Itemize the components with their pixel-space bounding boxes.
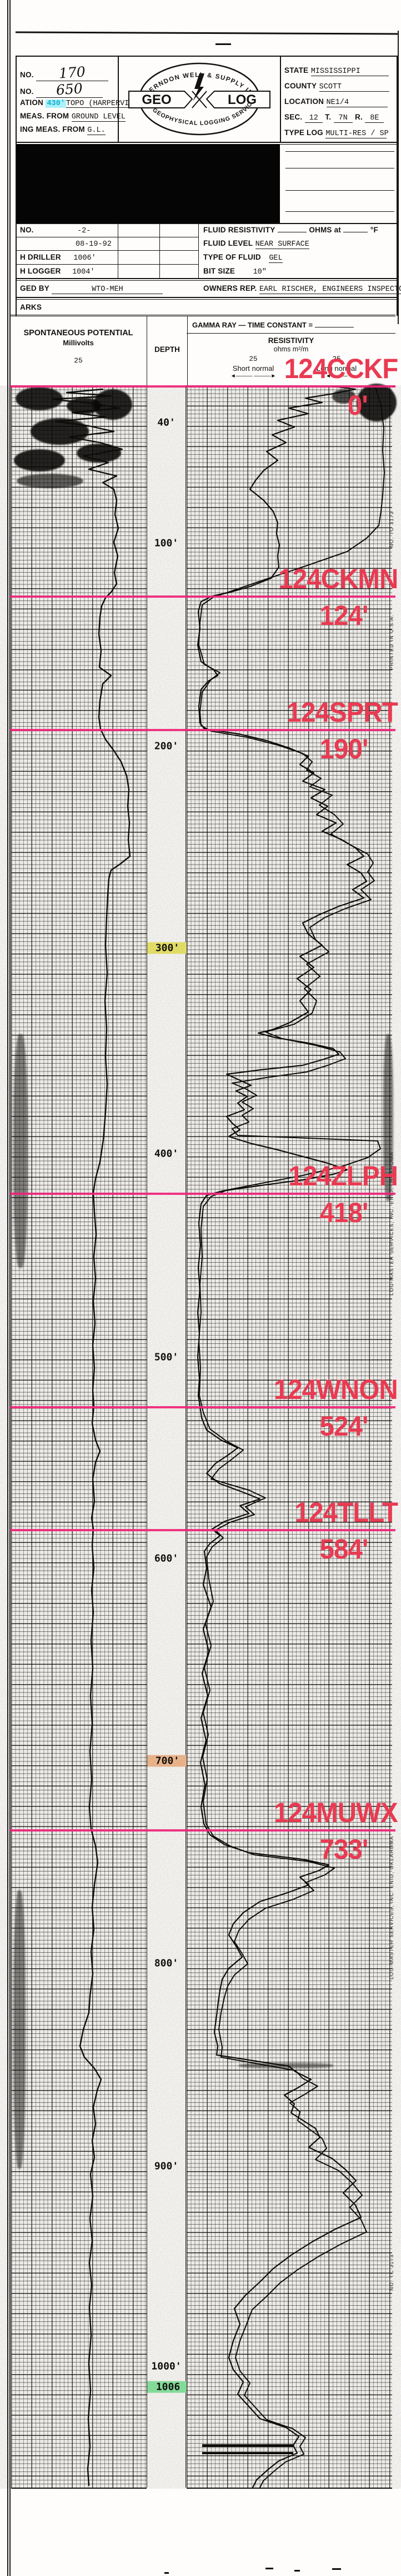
arrow-left-icon: ◄———	[230, 373, 253, 379]
field-meas-from: MEAS. FROM GROUND LEVEL	[20, 111, 126, 121]
edge-smudge	[13, 1034, 28, 1268]
toner-blotch	[93, 389, 132, 420]
short-normal-scale: 25	[220, 355, 287, 363]
field-value: G.L.	[87, 126, 105, 135]
margin-note-4: NO. TC 3173	[389, 2254, 394, 2291]
field-label: H LOGGER	[20, 267, 61, 275]
field-run-no: NO. -2-	[20, 225, 91, 235]
field-no-2: NO. 650	[20, 81, 103, 98]
field-fluid-level: FLUID LEVEL NEAR SURFACE	[203, 239, 309, 249]
field-label: ATION	[20, 98, 43, 107]
resistivity-title: RESISTIVITY	[187, 336, 395, 345]
depth-label-500: 500'	[147, 1352, 186, 1363]
field-depth-logger: H LOGGER 1004'	[20, 266, 95, 276]
long-normal-scale: 25	[303, 355, 370, 363]
field-label: NO.	[20, 226, 34, 234]
toner-blotch	[17, 474, 83, 488]
field-label: NO.	[20, 71, 34, 79]
field-value: WTO-MEH	[52, 285, 163, 294]
margin-note-0: NO. TC 3173	[389, 511, 394, 548]
depth-track: 40'100'200'300'400'500'600'700'800'900'1…	[147, 385, 186, 2488]
long-normal-arrows: ◄———	[303, 373, 370, 379]
depth-label-300: 300'	[147, 942, 188, 954]
field-value: 10"	[253, 268, 267, 276]
toner-blotch	[77, 444, 121, 463]
sp-track-grid	[11, 385, 147, 2489]
field-label: COUNTY	[284, 82, 317, 90]
field-fluid-resistivity: FLUID RESISTIVITY OHMS at °F	[203, 225, 378, 235]
ink-bar	[202, 2452, 293, 2454]
field-remarks: ARKS	[20, 302, 42, 312]
field-unit: OHMS at	[309, 226, 341, 234]
margin-note-2: LOG-MASTER SERVICES, INC. ENID, OKLAHOMA	[389, 1152, 394, 1296]
ink-dash	[215, 43, 231, 45]
field-state: STATE MISSISSIPPI	[284, 66, 389, 76]
field-value-t: 7N	[334, 114, 353, 123]
field-value-sec: 12	[305, 114, 323, 123]
resistivity-divider	[187, 333, 395, 334]
depth-label-100: 100'	[147, 538, 186, 549]
depth-labels-layer: 40'100'200'300'400'500'600'700'800'900'1…	[147, 0, 186, 2488]
field-owners-rep: OWNERS REP. EARL RISCHER, ENGINEERS INSP…	[203, 284, 401, 294]
field-value-handwritten: 170	[58, 63, 86, 81]
field-logged-by: GED BY WTO-MEH	[20, 284, 163, 294]
toner-blotch	[332, 389, 355, 404]
field-value-handwritten: 650	[56, 80, 83, 98]
field-sec-t-r: SEC. 12 T. 7N R. 8E	[284, 112, 384, 123]
blank-field-line	[285, 211, 394, 212]
depth-label-1006: 1006	[147, 2381, 189, 2393]
field-label: FLUID LEVEL	[203, 239, 253, 247]
field-value: NEAR SURFACE	[255, 240, 309, 249]
field-label-sec: SEC.	[284, 113, 302, 121]
sp-title: SPONTANEOUS POTENTIAL	[10, 329, 147, 337]
ink-speck	[164, 2572, 169, 2574]
page-border-right	[398, 31, 399, 324]
depth-label-400: 400'	[147, 1148, 186, 1160]
field-value-r: 8E	[365, 114, 384, 123]
log-header: NO. 170 NO. 650 ATION 430'TOPO (HARPERVI…	[16, 56, 398, 316]
field-location: LOCATION NE1/4	[284, 97, 388, 107]
gamma-ray-text: GAMMA RAY — TIME CONSTANT =	[192, 321, 313, 329]
field-unit: °F	[370, 226, 378, 234]
elevation-highlight: 430'	[46, 100, 66, 108]
ink-speck	[332, 2568, 341, 2570]
field-date: 08-19-92	[20, 239, 112, 249]
gamma-ray-label: GAMMA RAY — TIME CONSTANT =	[192, 321, 390, 329]
field-label: ARKS	[20, 303, 42, 311]
field-value: GEL	[269, 254, 282, 263]
ink-speck	[294, 2570, 300, 2572]
short-normal-label: Short normal	[220, 364, 287, 373]
field-value: SCOTT	[319, 83, 389, 92]
depth-label-900: 900'	[147, 2161, 186, 2172]
toner-blotch	[31, 418, 89, 445]
field-value: 1004'	[72, 268, 95, 276]
geolog-logo: HERNDON WELL & SUPPLY INC. GEO LOG GEOPH…	[119, 57, 280, 142]
run-info-section: NO. -2- 08-19-92 H DRILLER 1006' H LOGGE…	[17, 223, 397, 278]
long-normal-label: Long normal	[303, 364, 370, 373]
column-divider	[198, 223, 199, 278]
field-value: MULTI-RES / SP	[325, 130, 387, 138]
field-label: GED BY	[20, 284, 49, 292]
depth-label-40: 40'	[147, 417, 186, 429]
logo-x-cross	[192, 91, 207, 108]
geolog-logo-box: HERNDON WELL & SUPPLY INC. GEO LOG GEOPH…	[118, 57, 281, 142]
field-label: H DRILLER	[20, 253, 61, 261]
depth-label-700: 700'	[147, 1755, 188, 1767]
field-label: ING MEAS. FROM	[20, 125, 85, 133]
margin-note-1: PRINTED IN U.S.A.	[389, 614, 394, 670]
field-label: STATE	[284, 66, 308, 75]
field-county: COUNTY SCOTT	[284, 81, 389, 92]
short-normal-arrows: ◄——— ———►	[220, 373, 287, 379]
field-label: LOCATION	[284, 97, 324, 106]
arrow-right-icon: ———►	[254, 373, 276, 379]
field-value: 1006'	[73, 254, 96, 262]
curve-header: SPONTANEOUS POTENTIAL Millivolts 25 DEPT…	[10, 315, 395, 387]
toner-blotch-top-right	[357, 384, 397, 421]
resistivity-track-grid	[187, 385, 392, 2489]
ink-smear	[239, 2063, 333, 2068]
field-label: NO.	[20, 87, 34, 96]
edge-smudge	[13, 1890, 26, 2168]
field-value: 08-19-92	[76, 240, 112, 249]
field-label-r: R.	[355, 113, 363, 121]
ink-speck	[265, 2568, 273, 2569]
blank-field-line	[285, 168, 394, 168]
arrow-left-icon: ◄———	[325, 373, 348, 379]
ink-bar	[202, 2444, 293, 2447]
resistivity-header-box: GAMMA RAY — TIME CONSTANT = RESISTIVITY …	[187, 316, 395, 385]
toner-blotch	[16, 387, 63, 410]
depth-label-1000: 1000'	[147, 2361, 186, 2372]
field-label: MEAS. FROM	[20, 112, 69, 120]
header-divider	[17, 278, 397, 281]
sp-scale: 25	[10, 356, 147, 365]
field-type-log: TYPE LOG MULTI-RES / SP	[284, 128, 387, 138]
field-label: OWNERS REP.	[203, 284, 257, 292]
depth-label-600: 600'	[147, 1553, 186, 1565]
margin-note-3: LOG-MASTER SERVICES, INC. ENID, OKLAHOMA	[389, 1836, 394, 1979]
field-label: BIT SIZE	[203, 267, 235, 275]
field-no-1: NO. 170	[20, 64, 108, 81]
sp-units: Millivolts	[10, 339, 147, 347]
well-log-page: NO. 170 NO. 650 ATION 430'TOPO (HARPERVI…	[0, 0, 401, 2576]
field-label: TYPE OF FLUID	[203, 253, 261, 261]
field-value: NE1/4	[327, 98, 388, 107]
page-border-left-outer	[7, 0, 8, 2576]
depth-label-800: 800'	[147, 1958, 186, 1969]
field-value: EARL RISCHER, ENGINEERS INSPECTOR.	[259, 285, 401, 294]
field-label-t: T.	[325, 113, 331, 121]
field-label: TYPE LOG	[284, 128, 323, 137]
blank-field-line	[285, 151, 394, 152]
header-id-section: NO. 170 NO. 650 ATION 430'TOPO (HARPERVI…	[17, 57, 397, 142]
field-value: -2-	[77, 227, 91, 235]
field-depth-driller: H DRILLER 1006'	[20, 252, 96, 262]
field-drilling-meas-from: ING MEAS. FROM G.L.	[20, 125, 106, 135]
field-bit-size: BIT SIZE 10"	[203, 266, 267, 276]
header-divider	[17, 297, 397, 300]
field-value: MISSISSIPPI	[311, 67, 389, 76]
torn-edge-line	[16, 31, 398, 34]
depth-label-200: 200'	[147, 741, 186, 752]
blank-field-line	[285, 190, 394, 191]
resistivity-units: ohms m²/m	[187, 345, 395, 353]
field-label: FLUID RESISTIVITY	[203, 226, 275, 234]
field-type-of-fluid: TYPE OF FLUID GEL	[203, 252, 283, 262]
sp-header-box: SPONTANEOUS POTENTIAL Millivolts 25	[10, 316, 147, 385]
toner-blotch	[14, 449, 65, 471]
